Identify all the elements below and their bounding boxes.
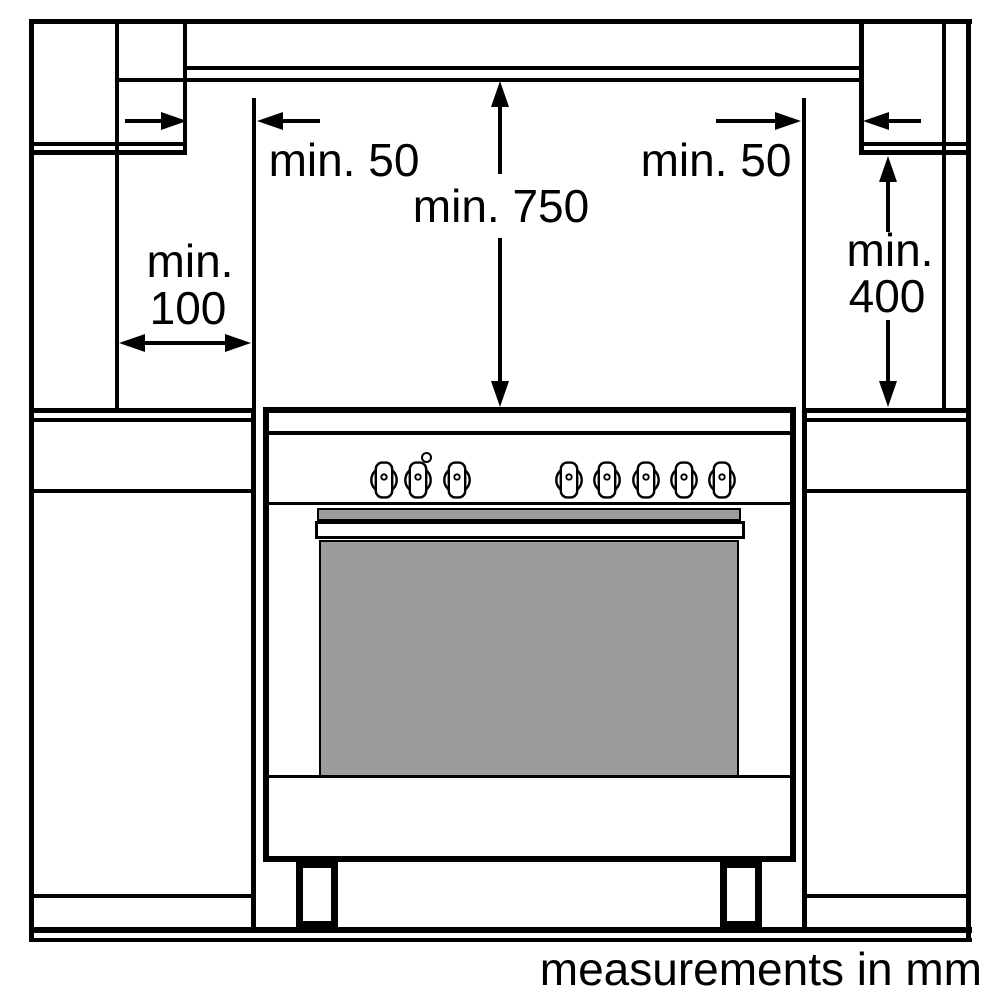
left-worktop-top-line bbox=[29, 408, 255, 413]
left-base-cabinet-plinth-line bbox=[29, 894, 255, 898]
right-base-cabinet-drawer-line bbox=[802, 489, 971, 493]
control-knob bbox=[401, 461, 435, 504]
hood-rail-bottom-line bbox=[117, 78, 861, 82]
left-clearance-arrowhead-inner bbox=[257, 112, 283, 130]
right-outer-edge bbox=[966, 19, 971, 942]
vertical-clearance-shaft-upper bbox=[498, 105, 502, 174]
right-base-cabinet-left-edge bbox=[802, 408, 807, 929]
left-clearance-arrow-shaft-inner bbox=[281, 119, 320, 123]
right-clearance-arrowhead-inner bbox=[775, 112, 801, 130]
left-clearance-label: min. 50 bbox=[258, 137, 430, 185]
left-worktop-bottom-line bbox=[29, 418, 255, 422]
right-upper-cabinet-bottom-line1 bbox=[859, 142, 971, 146]
right-upper-cabinet-bottom-line2 bbox=[859, 150, 971, 155]
left-depth-arrowhead-left bbox=[119, 334, 145, 352]
right-cabinet-inner-edge bbox=[942, 19, 946, 410]
control-knob bbox=[552, 461, 586, 504]
oven-door-handle bbox=[315, 521, 745, 539]
right-worktop-bottom-line bbox=[802, 418, 971, 422]
floor-line-lower bbox=[29, 938, 972, 942]
niche-right-boundary-line bbox=[802, 98, 806, 408]
control-knob bbox=[590, 461, 624, 504]
oven-door-bottom-line bbox=[269, 775, 790, 778]
control-knob bbox=[440, 461, 474, 504]
right-clearance-arrow-shaft-outer bbox=[887, 119, 921, 123]
control-knob bbox=[705, 461, 739, 504]
left-outer-edge bbox=[29, 19, 34, 942]
vertical-clearance-arrowhead-down bbox=[491, 381, 509, 407]
left-base-cabinet-drawer-line bbox=[29, 489, 255, 493]
left-depth-label-line1: min. bbox=[128, 238, 252, 286]
control-knob bbox=[629, 461, 663, 504]
cooker-leg-right bbox=[720, 861, 762, 928]
right-height-shaft-lower bbox=[886, 320, 890, 382]
left-upper-cabinet-bottom-line1 bbox=[29, 142, 187, 146]
oven-door-top-strip bbox=[317, 508, 741, 521]
control-knob bbox=[367, 461, 401, 504]
floor-line-upper bbox=[29, 927, 972, 933]
right-height-label-line2: 400 bbox=[825, 273, 949, 321]
units-note: measurements in mm bbox=[480, 946, 982, 994]
left-base-cabinet-right-edge bbox=[251, 408, 256, 929]
right-height-arrowhead-down bbox=[879, 381, 897, 407]
left-upper-cabinet-right-edge bbox=[183, 19, 187, 154]
control-knob bbox=[667, 461, 701, 504]
right-upper-cabinet-left-edge bbox=[859, 19, 864, 154]
installation-diagram: min. 50 min. 50 min. 750 min. 100 min. 4… bbox=[0, 0, 1000, 1000]
vertical-clearance-label: min. 750 bbox=[406, 183, 596, 231]
vertical-clearance-arrowhead-up bbox=[491, 81, 509, 107]
left-depth-label-line2: 100 bbox=[126, 285, 250, 333]
right-worktop-top-line bbox=[802, 408, 971, 413]
cooker-leg-left bbox=[296, 861, 338, 928]
indicator-light bbox=[421, 452, 432, 463]
right-clearance-label: min. 50 bbox=[630, 137, 802, 185]
left-clearance-arrowhead-outer bbox=[161, 112, 187, 130]
niche-left-boundary-line bbox=[252, 98, 256, 408]
left-clearance-arrow-shaft-outer bbox=[125, 119, 163, 123]
hob-edge-line bbox=[269, 431, 790, 435]
right-base-cabinet-plinth-line bbox=[802, 894, 971, 898]
oven-door-glass bbox=[319, 540, 739, 777]
right-height-arrowhead-up bbox=[879, 156, 897, 182]
left-depth-arrow-shaft bbox=[143, 341, 227, 345]
right-height-label-line1: min. bbox=[828, 227, 952, 275]
right-clearance-arrowhead-outer bbox=[863, 112, 889, 130]
right-clearance-arrow-shaft-inner bbox=[716, 119, 777, 123]
hood-rail-top-line bbox=[185, 66, 861, 70]
left-depth-arrowhead-right bbox=[225, 334, 251, 352]
left-upper-cabinet-bottom-line2 bbox=[29, 150, 187, 155]
top-edge-line bbox=[29, 19, 972, 24]
vertical-clearance-shaft-lower bbox=[498, 238, 502, 383]
